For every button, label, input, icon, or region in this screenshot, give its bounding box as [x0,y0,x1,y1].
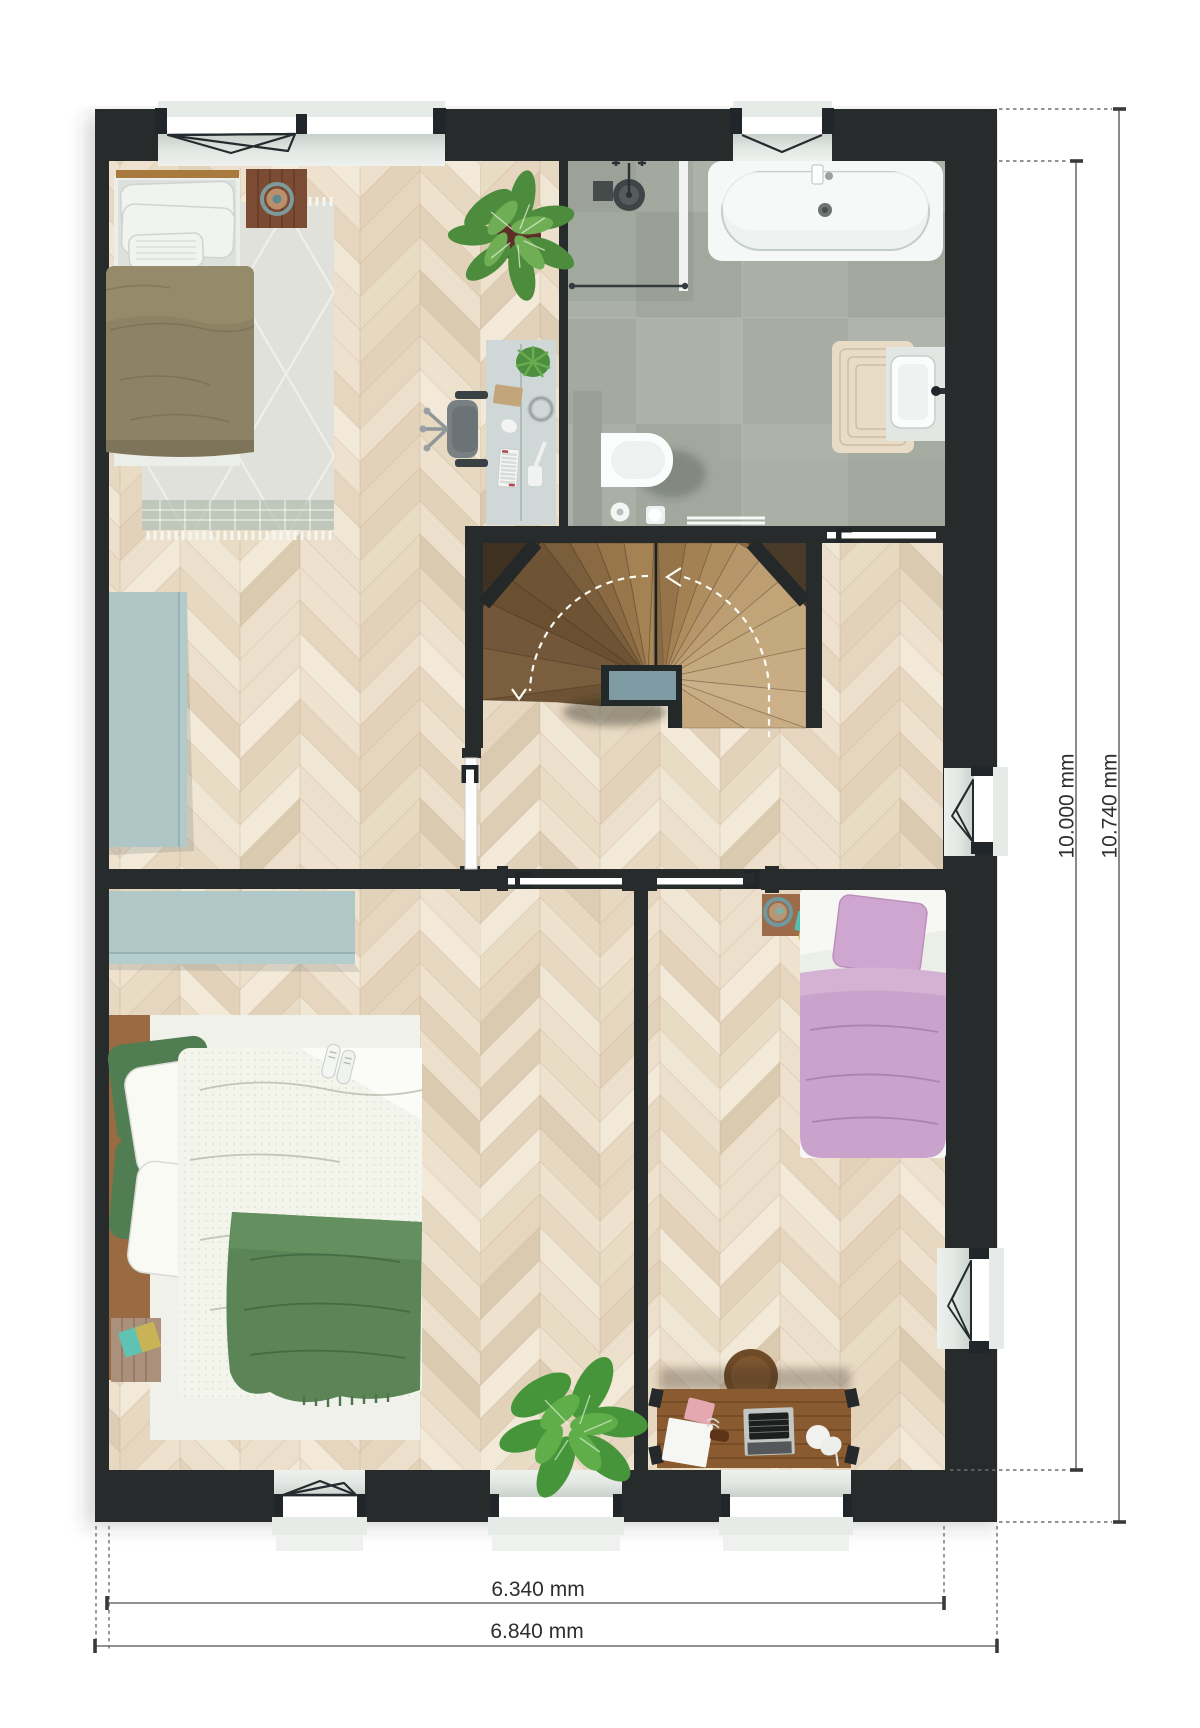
svg-text:10.000 mm: 10.000 mm [1056,753,1079,858]
svg-text:6.340 mm: 6.340 mm [491,1578,584,1601]
svg-text:10.740 mm: 10.740 mm [1099,753,1122,858]
svg-text:6.840 mm: 6.840 mm [490,1620,583,1643]
